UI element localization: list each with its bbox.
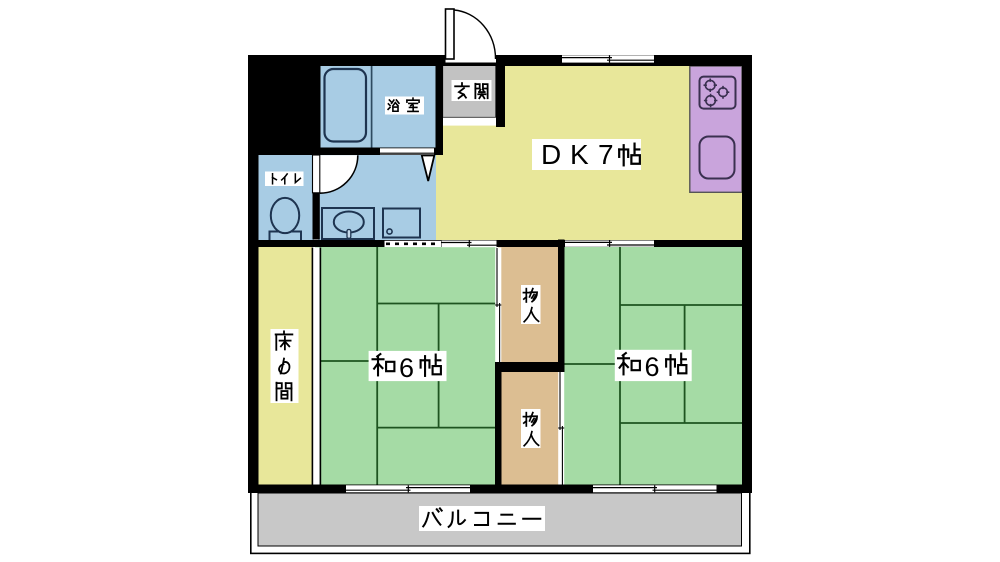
svg-text:K: K [570, 139, 589, 170]
svg-text:6: 6 [645, 352, 660, 382]
svg-text:6: 6 [399, 353, 414, 383]
svg-text:D: D [541, 139, 561, 170]
svg-text:7: 7 [598, 139, 614, 170]
